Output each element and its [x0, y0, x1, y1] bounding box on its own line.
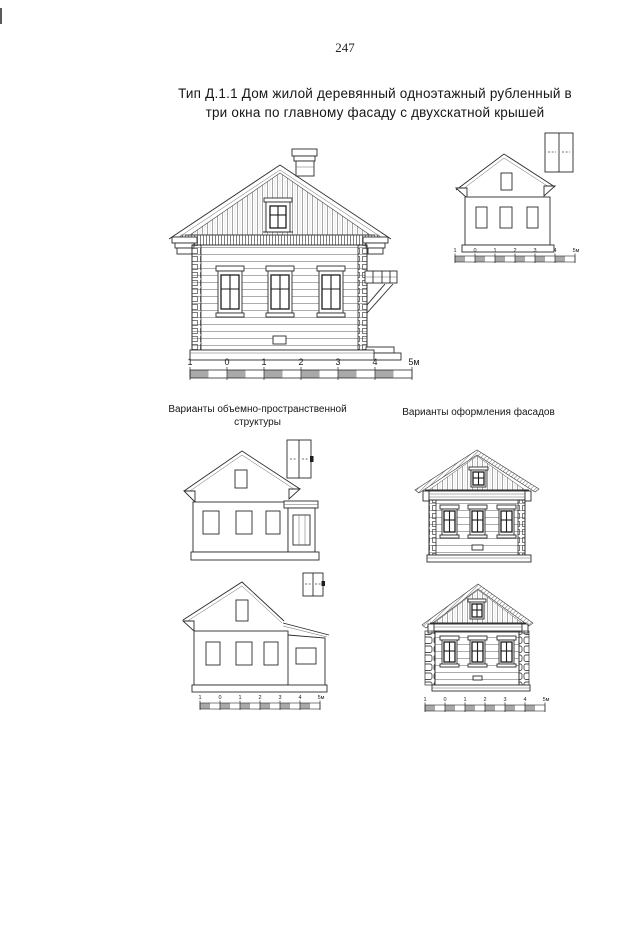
shed-extension [288, 635, 325, 685]
porch-canopy [365, 271, 397, 313]
scale-label: 5м [543, 697, 550, 703]
attic-window [236, 600, 248, 621]
eave-return-left [183, 621, 194, 631]
vent [472, 545, 483, 550]
base-plinth [192, 685, 327, 692]
wall [193, 502, 288, 552]
drawings-canvas: 1 0 1 2 3 4 5м [0, 0, 640, 925]
scale-label: 0 [224, 357, 229, 367]
eave-return-right [544, 186, 555, 196]
scale-label: 4 [298, 695, 301, 701]
extension-window [296, 648, 316, 664]
facade-variant-2-drawing: 1 0 1 2 3 4 5м [422, 584, 550, 712]
scale-label: 4 [553, 248, 556, 254]
scale-label: 3 [278, 695, 281, 701]
scale-label: 4 [523, 697, 526, 703]
side-elevation-drawing: 1 0 1 2 3 4 5м [453, 133, 579, 263]
window-3 [497, 505, 516, 538]
scale-label: 5м [408, 357, 419, 367]
attic-window [501, 173, 512, 190]
scale-label: 1 [423, 697, 426, 703]
eaves-fringe [181, 235, 379, 245]
scale-label: 1 [493, 248, 496, 254]
scale-label: 3 [503, 697, 506, 703]
base-plinth [432, 685, 530, 691]
scale-label: 3 [533, 248, 536, 254]
house-outline [456, 154, 555, 252]
document-page: 247 Тип Д.1.1 Дом жилой деревянный одноэ… [0, 0, 640, 925]
base-plinth [191, 552, 319, 560]
attic-window [469, 467, 488, 487]
base-plinth [427, 555, 531, 562]
eave-return-left [456, 188, 467, 198]
scale-label: 0 [218, 695, 221, 701]
scale-label: 2 [513, 248, 516, 254]
scale-label: 2 [483, 697, 486, 703]
vent [273, 336, 286, 344]
plan-entry-mark [310, 456, 314, 462]
scale-label: 1 [238, 695, 241, 701]
scale-bar-volume: 1 0 1 2 3 4 5м [198, 695, 324, 710]
corner-board-left [192, 245, 201, 350]
scale-label: 1 [187, 357, 192, 367]
facade-variant-1-drawing [415, 450, 539, 562]
scale-label: 1 [198, 695, 201, 701]
plan-entry-mark [322, 581, 326, 586]
main-facade-drawing: 1 0 1 2 3 4 5м [169, 149, 420, 380]
scale-label: 0 [473, 248, 476, 254]
plan-icon [303, 573, 325, 596]
scale-label: 2 [258, 695, 261, 701]
window-2 [266, 266, 294, 317]
vent [473, 676, 482, 680]
corner-board-right [358, 245, 367, 350]
corner-board-left [429, 500, 436, 555]
volume-variant-2-drawing: 1 0 1 2 3 4 5м [183, 573, 329, 710]
plan-icon [287, 440, 314, 478]
window-1 [440, 505, 459, 538]
wall [194, 631, 288, 685]
scale-label: 3 [335, 357, 340, 367]
chimney [292, 149, 317, 176]
scale-bar-facade: 1 0 1 2 3 4 5м [423, 697, 549, 712]
scale-label: 4 [372, 357, 377, 367]
porch-extension [284, 501, 318, 552]
attic-window [235, 470, 247, 488]
corner-board-right [518, 500, 525, 555]
eave-return-left [184, 491, 195, 502]
scale-label: 1 [453, 248, 456, 254]
window-1 [440, 636, 459, 667]
plan-icon [545, 133, 573, 172]
attic-window [468, 599, 486, 619]
window-2 [468, 636, 487, 667]
eave-return-right [289, 489, 300, 499]
volume-variant-1-drawing [184, 440, 319, 560]
window-2 [468, 505, 487, 538]
window-1 [216, 266, 244, 317]
scale-label: 2 [298, 357, 303, 367]
scale-label: 5м [573, 248, 580, 254]
scale-bar-main: 1 0 1 2 3 4 5м [187, 357, 419, 380]
log-ends-left [425, 631, 435, 685]
shed-roof [283, 623, 329, 635]
scale-label: 1 [261, 357, 266, 367]
attic-window [263, 198, 293, 232]
scale-label: 5м [318, 695, 325, 701]
cornice-band [423, 491, 531, 501]
scale-label: 1 [463, 697, 466, 703]
log-ends-right [519, 631, 529, 685]
base-plinth [190, 350, 374, 360]
window-3 [497, 636, 516, 667]
window-3 [317, 266, 345, 317]
scale-label: 0 [443, 697, 446, 703]
